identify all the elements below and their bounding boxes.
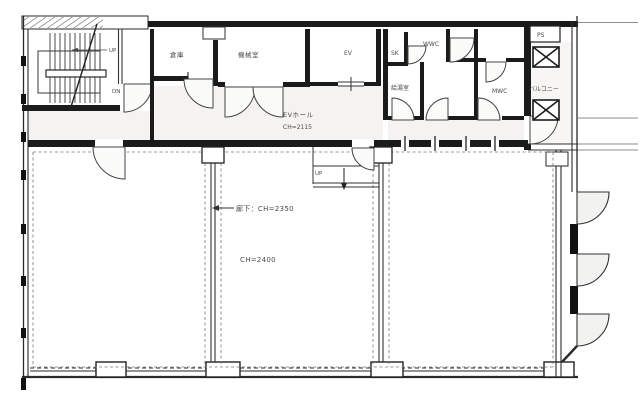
room-divider-1 xyxy=(211,162,215,362)
corridor-ch-label: 廊下：CH=2350 xyxy=(236,204,294,213)
stair-landing xyxy=(46,70,106,77)
floor-plan: UP DN xyxy=(0,0,640,406)
mwc-door-arc xyxy=(478,98,500,120)
machine-room-label: 機械室 xyxy=(238,50,259,59)
mwc-label: MWC xyxy=(492,88,507,95)
pipe-shaft-box xyxy=(530,26,560,42)
stair-down-label: DN xyxy=(112,89,120,95)
storage-label: 倉庫 xyxy=(170,50,184,59)
room1-door-arc xyxy=(93,147,125,179)
balcony-hatch-icon-2 xyxy=(533,100,559,120)
step-door-arc xyxy=(352,148,374,170)
stair-door-arc xyxy=(124,84,152,112)
kitchenette-door-arc xyxy=(392,98,414,120)
main-rooms xyxy=(33,147,609,367)
wall-pilaster xyxy=(203,27,225,39)
sk-door-arc xyxy=(408,46,426,64)
sk-label: SK xyxy=(391,50,400,57)
ev-hall-label: EVホール xyxy=(283,111,314,119)
mwc-booth-door-arc xyxy=(486,62,506,82)
ceiling-dashed-lines xyxy=(33,152,553,367)
wwc-label: WWC xyxy=(423,41,439,48)
exterior-door-arc-2 xyxy=(577,254,609,286)
exterior-door-arc-3 xyxy=(577,314,609,346)
elevator-label: EV xyxy=(344,50,353,57)
bottom-columns xyxy=(96,362,574,377)
staircase: UP DN xyxy=(22,24,152,112)
stair-break-line xyxy=(70,24,97,110)
exterior-door-arc-1 xyxy=(577,192,609,224)
kitchenette-label: 給湯室 xyxy=(391,84,409,92)
floor-plan-svg: UP DN xyxy=(0,0,640,406)
ps-label: PS xyxy=(537,32,545,39)
ev-hall-ch-label: CH=2115 xyxy=(283,124,312,131)
wwc-door-arc xyxy=(426,98,448,120)
column-1 xyxy=(202,147,224,163)
stair-up-label: UP xyxy=(109,48,117,54)
exterior-wall-thick xyxy=(570,224,578,254)
balcony-hatch-icon xyxy=(533,47,559,67)
room-ch-label: CH=2400 xyxy=(240,256,276,264)
balcony-label: バルコニー xyxy=(529,86,559,93)
wall-notch xyxy=(546,152,568,166)
step-up-label: UP xyxy=(315,171,323,177)
room-divider-2 xyxy=(379,162,383,362)
extension-lines xyxy=(578,23,638,151)
